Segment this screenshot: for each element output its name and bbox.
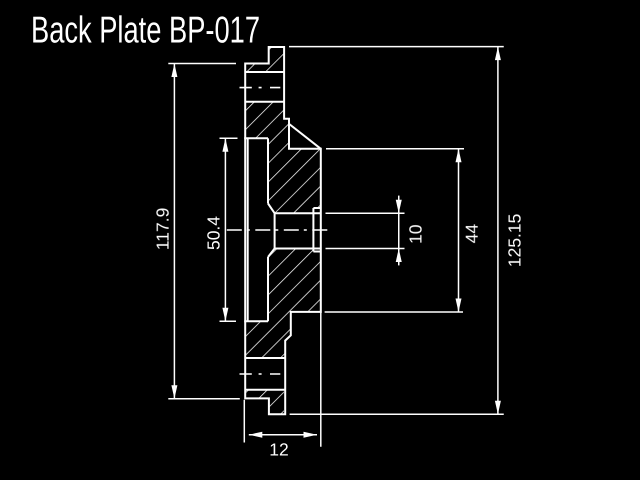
svg-text:117.9: 117.9 (153, 208, 173, 251)
svg-text:125.15: 125.15 (505, 214, 525, 268)
svg-text:10: 10 (406, 224, 426, 244)
svg-text:12: 12 (269, 439, 288, 459)
svg-text:44: 44 (462, 224, 482, 244)
svg-text:Back Plate BP-017: Back Plate BP-017 (31, 9, 260, 51)
svg-text:50.4: 50.4 (204, 216, 224, 250)
